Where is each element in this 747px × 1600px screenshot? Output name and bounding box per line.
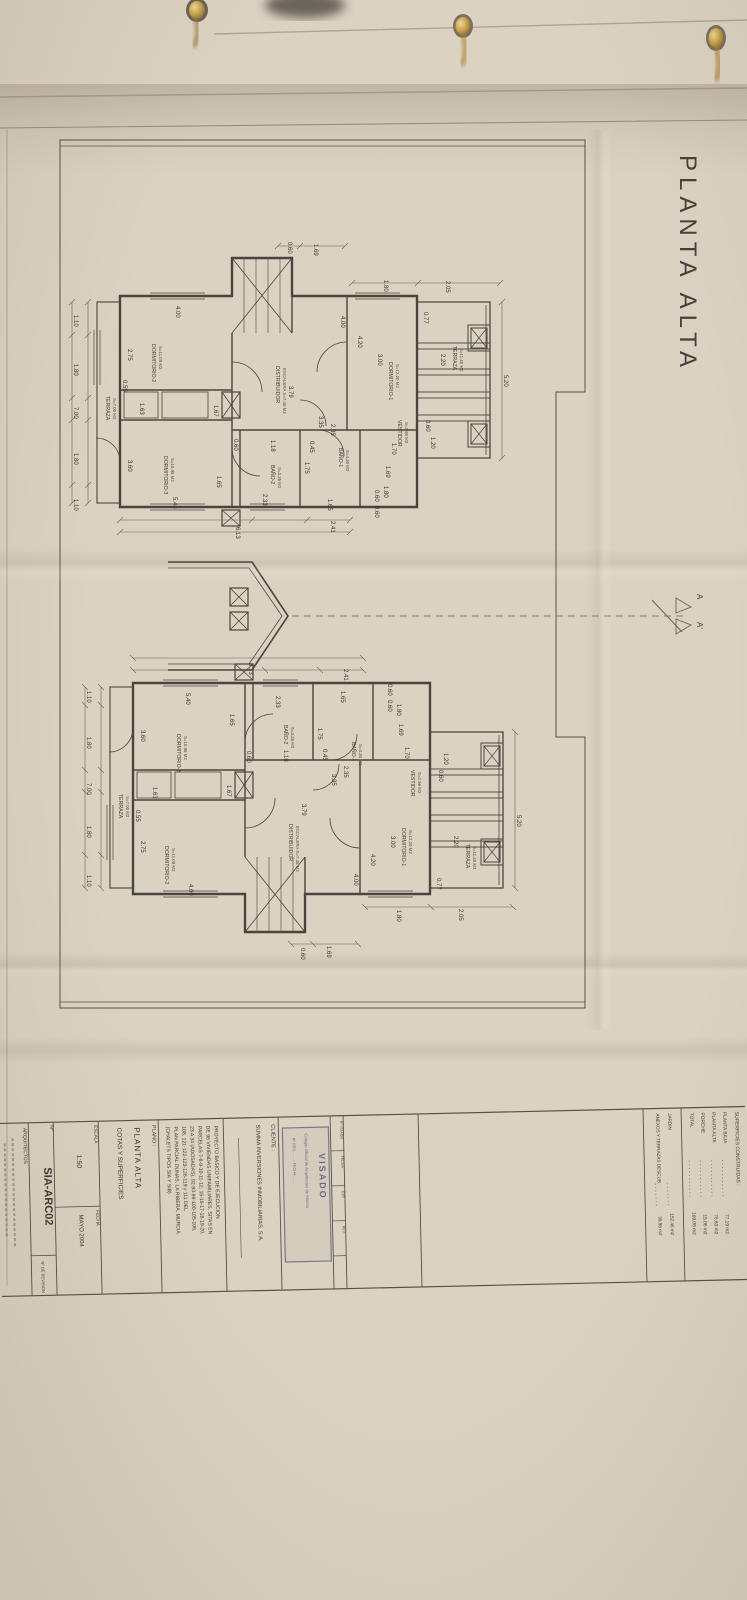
room-label: TERRAZA [104, 396, 110, 421]
dimension-label: 1.80 [395, 704, 401, 716]
room-area-label: S=4.30 M2 [358, 744, 363, 766]
cliente-value: SUMMA INVERSIONES INMOBILIARIAS, S.A. [254, 1125, 263, 1242]
room-label: DORMITORIO-1 [400, 828, 406, 866]
revision-label: Nº DE REVISION [40, 1261, 46, 1292]
dimension-label: 4.00 [339, 316, 345, 328]
dimension-label: 1.18 [282, 750, 288, 762]
dimension-label: 0.45 [321, 749, 327, 761]
dimension-label: 0.60 [299, 948, 305, 960]
dimension-label: 2.35 [329, 424, 335, 436]
fastener-icon [186, 0, 208, 47]
plan-drawing: A A' PLANTA ALTA 0.600.601.691.691.801.8… [0, 0, 747, 1600]
dimension-label: 0.55 [134, 810, 140, 822]
dimension-label: 3.79 [300, 804, 306, 816]
superficies-row-value: 77.19 m2 [723, 1214, 729, 1234]
fecha-label: FECHA [95, 1210, 100, 1227]
room-label: BAÑO-1 [337, 448, 344, 467]
title-block-divider [278, 1117, 282, 1290]
dimension-label: 1.65 [228, 714, 234, 726]
room-area-label: S=12.20 M2 [408, 830, 413, 854]
dimension-label: 1.80 [85, 826, 91, 838]
section-marker-a2: A' [695, 622, 704, 629]
room-area-label: S=10.95 M2 [170, 458, 175, 482]
visado-side-cell-label: REV. [342, 1226, 346, 1234]
dimension-label: 0.60 [437, 770, 443, 782]
section-axis [292, 598, 691, 634]
proyecto-line: 23 A 34 (ADOSADAS), 92-93-99-100-105-106… [188, 1126, 196, 1231]
arquitectos-label: ARQUITECTOS [21, 1128, 28, 1165]
dimension-label: 0.55 [121, 380, 127, 392]
room-label: VESTIDOR [409, 770, 415, 797]
fecha-value: MAYO 2004 [77, 1215, 84, 1248]
escala-value: 1:50 [75, 1155, 82, 1169]
room-area-label: ESCALERA S=7.45 M2 [295, 826, 300, 872]
superficies-extra-label: JARDIN [667, 1113, 672, 1130]
grid-line [239, 1138, 242, 1258]
dimension-label: 1.70 [390, 443, 396, 455]
superficies-extra-value: 30.98 m2 [657, 1216, 662, 1236]
visado-stamp: VISADO Colegio Oficial de Arquitectos de… [282, 1127, 331, 1262]
room-area-label: S=11.09 M2 [158, 346, 163, 370]
section-marker-a: A [695, 594, 704, 600]
dimension-label: 1.67 [212, 405, 218, 417]
room-label: TERRAZA [451, 346, 457, 371]
sheet-edges [0, 20, 747, 1285]
dotted-leader [722, 1160, 723, 1197]
numero-label: Nº [48, 1125, 54, 1131]
room-area-label: S=4.30 M2 [345, 450, 350, 472]
visado-side-cell-label: Nº VISADO [339, 1121, 343, 1140]
title-block-divider [330, 1116, 334, 1289]
dimension-label: 1.63 [138, 403, 144, 415]
proyecto-line: 108, 121-122-123-126-119 y 111 DEL [180, 1126, 188, 1211]
dimension-label: 1.10 [85, 691, 91, 703]
dimension-label: 2.33 [274, 696, 280, 708]
dimension-label: 5.40 [171, 497, 177, 509]
dimension-label: 1.80 [395, 910, 401, 922]
dimension-label: 3.00 [389, 836, 395, 848]
cliente-label: CLIENTE : [269, 1124, 276, 1151]
dimension-label: 6.13 [234, 527, 240, 539]
dimension-label: 1.10 [85, 875, 91, 887]
dimension-label: 1.65 [326, 499, 332, 511]
dimension-label: 1.10 [72, 315, 78, 327]
room-label: BAÑO-2 [282, 725, 289, 744]
room-label: TERRAZA [464, 844, 470, 869]
dimension-label: 1.80 [85, 737, 91, 749]
dotted-leader [711, 1160, 712, 1197]
lower-unit-plan [82, 655, 518, 947]
fastener-icon [453, 14, 473, 66]
superficies-extra-value: 152.46 m2 [669, 1213, 675, 1235]
dimension-label: 5.20 [502, 375, 508, 387]
superficies-row-label: PORCHE [699, 1112, 705, 1133]
escala-label: ESCALA [93, 1125, 98, 1144]
room-label: DISTRIBUIDOR [287, 824, 293, 861]
dimension-label: 2.35 [342, 766, 348, 778]
dimension-label: 2.75 [126, 349, 132, 361]
room-label: DORMITORIO-3 [162, 456, 168, 494]
fastener-icon [706, 25, 726, 81]
central-gable [168, 562, 288, 670]
dimension-label: 1.65 [215, 476, 221, 488]
dimension-label: 0.60 [424, 420, 430, 432]
dimension-label: 0.60 [373, 490, 379, 502]
dimension-label: 1.70 [403, 747, 409, 759]
visado-side-cell-label: EXP. [341, 1191, 345, 1199]
room-label: DORMITORIO-1 [387, 362, 393, 400]
dimension-label: 3.35 [317, 416, 323, 428]
plano-subtitle: COTAS Y SUPERFICIES [115, 1128, 124, 1200]
dimension-label: 1.80 [72, 453, 78, 465]
dimension-label: 0.60 [386, 684, 392, 696]
superficies-row-label: TOTAL [688, 1113, 694, 1128]
dimension-label: 2.75 [139, 841, 145, 853]
plano-label: PLANO : [150, 1125, 156, 1146]
proyecto-line: PROYECTO BASICO Y DE EJECUCION [212, 1125, 220, 1219]
room-area-label: S=7.00 M2 [112, 398, 117, 420]
room-area-label: S=11.40 M2 [472, 846, 477, 870]
proyecto-line: DE 96 VIVIENDAS UNIFAMILIARES, SITAS EN [204, 1126, 212, 1235]
sheet-title: PLANTA ALTA [674, 155, 701, 373]
dimension-label: 0.45 [308, 441, 314, 453]
dimension-label: 0.60 [245, 751, 251, 763]
title-block-divider [418, 1114, 422, 1287]
dimension-label: 4.20 [369, 854, 375, 866]
room-label: DISTRIBUIDOR [274, 366, 280, 403]
room-area-label: ESCALERA S=7.45 M2 [282, 368, 287, 414]
superficies-extra-label: ANEXOS Y TERRAZAS DESCUB. [655, 1113, 662, 1184]
dimension-label: 3.60 [126, 460, 132, 472]
room-area-label: S=3.35 M2 [277, 467, 282, 489]
dimension-label: 4.00 [187, 884, 193, 896]
superficies-row-value: 169.08 m2 [690, 1212, 697, 1235]
title-block-divider [343, 1116, 347, 1289]
visado-side-cell-label: FECHA [340, 1156, 344, 1169]
dimension-label: 1.10 [72, 499, 78, 511]
dimension-label: 3.60 [139, 730, 145, 742]
title-block: VISADO Colegio Oficial de Arquitectos de… [0, 1107, 747, 1297]
dimension-label: 0.77 [435, 878, 441, 890]
photo-of-floor-plan: A A' PLANTA ALTA 0.600.601.691.691.801.8… [0, 0, 747, 1600]
grid-line [55, 1206, 100, 1207]
superficies-row-value: 15.06 m2 [701, 1214, 707, 1234]
dimension-label: 0.60 [386, 700, 392, 712]
dimension-label: 2.41 [329, 521, 335, 533]
title-block-divider [28, 1123, 32, 1296]
title-block-divider [643, 1109, 647, 1282]
proyecto-line: PLAN PARCIAL DUNAS, LA RIBERA, MURCIA. [172, 1126, 180, 1235]
dimension-label: 1.18 [269, 440, 275, 452]
superficies-header: SUPERFICIES CONSTRUIDAS : [733, 1112, 741, 1186]
room-area-label: S=7.00 M2 [125, 796, 130, 818]
room-area-label: S=2.96 M2 [404, 422, 409, 444]
room-area-label: S=11.09 M2 [171, 848, 176, 872]
superficies-row-label: PLANTA BAJA [721, 1112, 728, 1144]
dimension-label: 1.69 [384, 466, 390, 478]
proyecto-line: (CHALETS TIPOS SIA Y SIB) [164, 1127, 172, 1195]
room-area-label: S=2.96 M2 [417, 772, 422, 794]
dimension-label: 2.20 [452, 836, 458, 848]
dimension-label: 3.35 [330, 774, 336, 786]
dimension-label: 2.41 [342, 669, 348, 681]
title-block-bottom-border [2, 1279, 747, 1296]
title-block-grid [0, 1107, 747, 1297]
plan-annotations: 0.600.601.691.691.801.802.052.054.004.00… [72, 242, 521, 960]
dimension-label: 3.00 [376, 354, 382, 366]
dimension-label: 1.69 [397, 724, 403, 736]
dimension-label: 1.65 [339, 691, 345, 703]
room-label: VESTIDOR [396, 420, 402, 447]
visado-title: VISADO [317, 1153, 328, 1200]
room-area-label: S=12.20 M2 [395, 364, 400, 388]
room-label: BAÑO-1 [350, 742, 357, 761]
numero-value: SIA-ARC02 [41, 1167, 54, 1225]
dimension-label: 8.13 [247, 663, 253, 675]
dimension-label: 1.67 [225, 785, 231, 797]
superficies-row-label: PLANTA ALTA [710, 1112, 717, 1143]
dimension-label: 0.60 [373, 506, 379, 518]
room-area-label: S=10.95 M2 [183, 736, 188, 760]
plot-outline [60, 140, 585, 1008]
grid-line [31, 1255, 56, 1256]
dimension-label: 1.80 [382, 486, 388, 498]
dimension-label: 1.75 [303, 462, 309, 474]
title-block-divider [158, 1120, 162, 1293]
dimension-label: 2.33 [261, 494, 267, 506]
dimension-label: 4.00 [174, 306, 180, 318]
dimension-label: 5.20 [515, 815, 521, 827]
room-label: DORMITORIO-2 [150, 344, 156, 382]
dimension-label: 7.00 [85, 783, 91, 795]
dimension-label: 0.60 [232, 439, 238, 451]
dimension-label: 1.80 [72, 364, 78, 376]
room-label: TERRAZA [117, 794, 123, 819]
dimension-label: 1.69 [312, 244, 318, 256]
dimension-label: 4.00 [352, 874, 358, 886]
dimension-label: 1.63 [151, 787, 157, 799]
room-label: DORMITORIO-2 [163, 846, 169, 884]
room-area-label: S=11.40 M2 [459, 348, 464, 372]
dimension-label: 0.77 [422, 312, 428, 324]
brass-fasteners [186, 0, 726, 81]
architect-names-illegible [5, 1138, 15, 1248]
title-block-divider [223, 1118, 227, 1291]
proyecto-line: PARCELAS 7-8-9-10-11-12, 15-16-17-18-19-… [196, 1126, 204, 1235]
dotted-leader [700, 1161, 701, 1198]
dimension-label: 4.20 [356, 336, 362, 348]
title-block-divider [681, 1108, 685, 1281]
dimension-label: 1.20 [442, 753, 448, 765]
dimension-label: 1.80 [382, 280, 388, 292]
dimension-label: 5.40 [184, 693, 190, 705]
dimension-label: 1.20 [429, 437, 435, 449]
dimension-label: 1.75 [316, 728, 322, 740]
title-block-top-border [0, 1107, 745, 1124]
room-area-label: S=3.35 M2 [290, 727, 295, 749]
blurred-clip [265, 0, 345, 18]
dimension-label: 2.20 [439, 354, 445, 366]
dimension-label: 0.60 [286, 242, 292, 254]
title-block-divider [98, 1121, 102, 1294]
dimension-label: 1.69 [325, 946, 331, 958]
dimension-label: 2.05 [457, 909, 463, 921]
plano-title: PLANTA ALTA [132, 1127, 142, 1189]
dimension-label: 2.05 [444, 281, 450, 293]
dimension-label: 7.00 [72, 407, 78, 419]
room-label: BAÑO-2 [269, 465, 276, 484]
room-label: DORMITORIO-3 [175, 734, 181, 772]
superficies-row-value: 76.83 m2 [712, 1214, 718, 1234]
dotted-leader [689, 1161, 690, 1198]
